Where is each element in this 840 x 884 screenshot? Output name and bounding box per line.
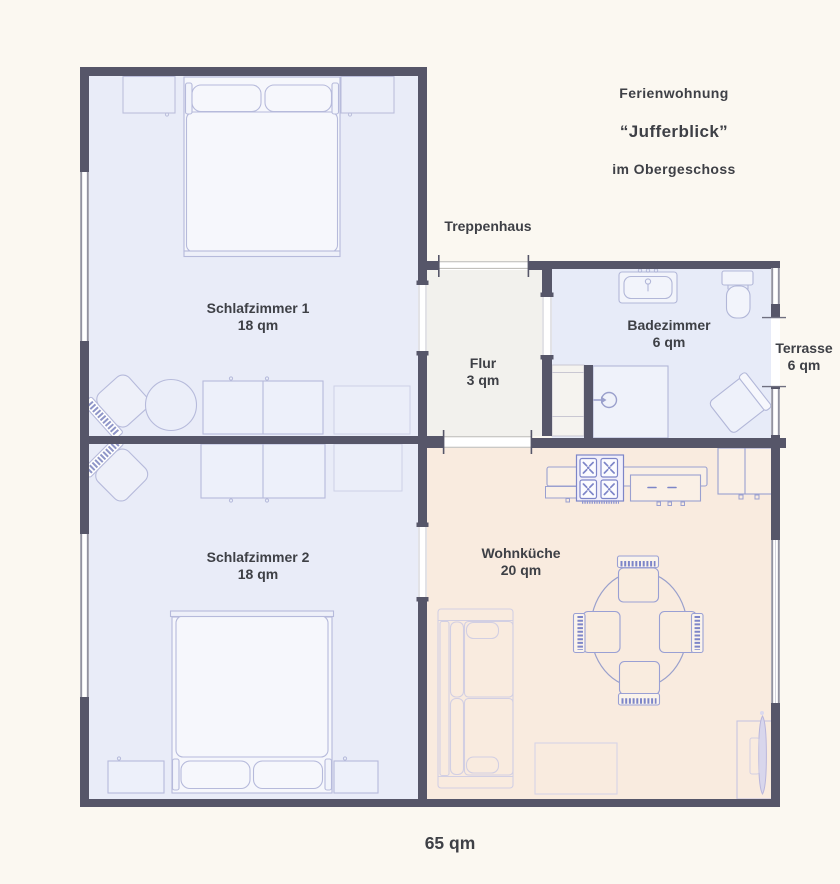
svg-text:Badezimmer: Badezimmer: [627, 317, 711, 333]
svg-text:Wohnküche: Wohnküche: [481, 545, 560, 561]
svg-text:Schlafzimmer 2: Schlafzimmer 2: [207, 549, 310, 565]
svg-text:20 qm: 20 qm: [501, 562, 541, 578]
svg-text:Schlafzimmer 1: Schlafzimmer 1: [207, 300, 310, 316]
svg-text:6 qm: 6 qm: [653, 334, 686, 350]
svg-text:Ferienwohnung: Ferienwohnung: [619, 85, 728, 101]
svg-text:im Obergeschoss: im Obergeschoss: [612, 161, 736, 177]
svg-text:3 qm: 3 qm: [467, 372, 500, 388]
svg-text:65 qm: 65 qm: [425, 833, 476, 853]
svg-text:Flur: Flur: [470, 355, 497, 371]
svg-text:Treppenhaus: Treppenhaus: [444, 218, 531, 234]
svg-text:18 qm: 18 qm: [238, 566, 278, 582]
svg-text:Terrasse: Terrasse: [775, 340, 833, 356]
svg-text:6 qm: 6 qm: [788, 357, 821, 373]
svg-text:18 qm: 18 qm: [238, 317, 278, 333]
svg-text:“Jufferblick”: “Jufferblick”: [620, 122, 728, 141]
